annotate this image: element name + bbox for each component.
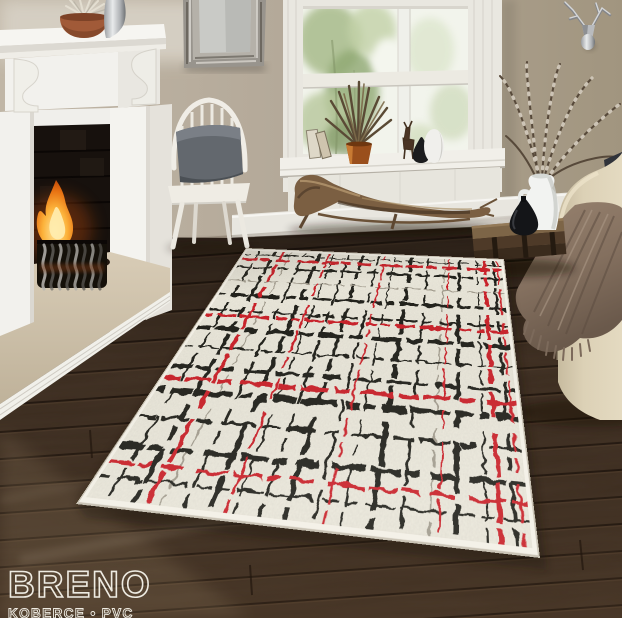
- sill-vase-white: [424, 129, 444, 163]
- brand-tagline: KOBERCE • PVC: [8, 606, 152, 618]
- brand-logo: BRENO KOBERCE • PVC: [8, 566, 152, 618]
- brand-name: BRENO: [8, 566, 152, 603]
- living-room-rug-photo: BRENO KOBERCE • PVC: [0, 0, 622, 618]
- wall-mirror: [183, 0, 266, 71]
- fire-grate: [37, 240, 107, 289]
